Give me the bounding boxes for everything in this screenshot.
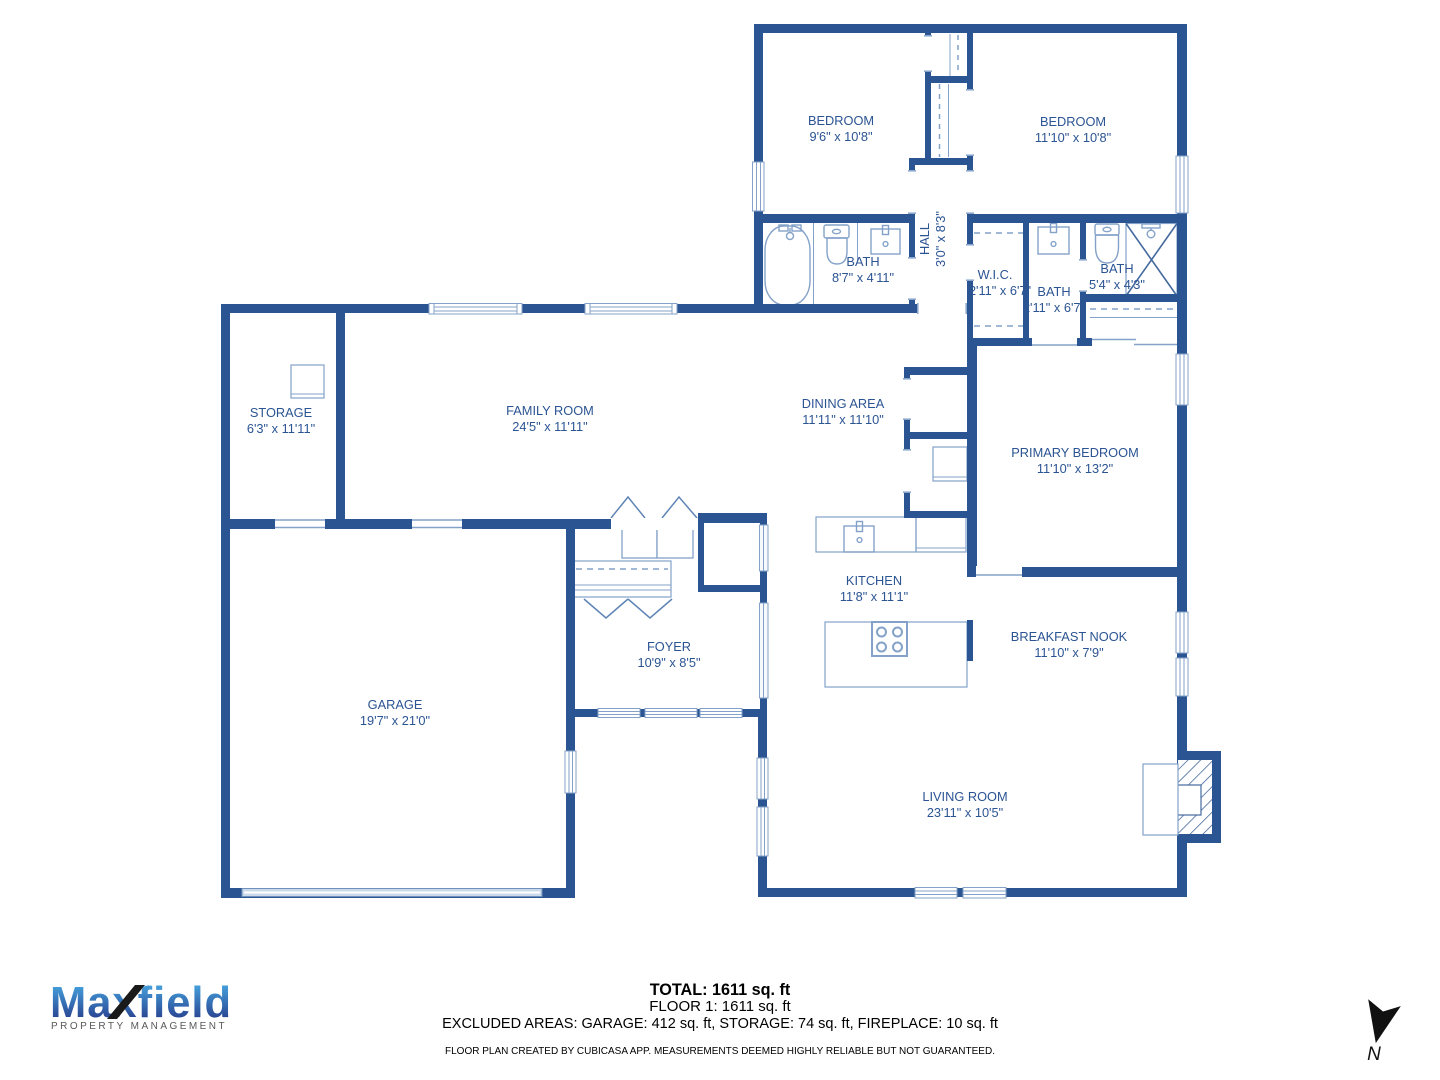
svg-text:2'11" x 6'7": 2'11" x 6'7" bbox=[969, 283, 1031, 298]
svg-text:BEDROOM: BEDROOM bbox=[808, 113, 874, 128]
svg-text:24'5" x 11'11": 24'5" x 11'11" bbox=[512, 419, 587, 434]
svg-text:5'4" x 4'3": 5'4" x 4'3" bbox=[1089, 277, 1145, 292]
svg-text:BATH: BATH bbox=[1037, 284, 1070, 299]
svg-text:BATH: BATH bbox=[1100, 261, 1133, 276]
svg-text:9'6" x 10'8": 9'6" x 10'8" bbox=[809, 129, 872, 144]
svg-text:W.I.C.: W.I.C. bbox=[978, 267, 1013, 282]
svg-text:EXCLUDED AREAS: GARAGE: 412 sq: EXCLUDED AREAS: GARAGE: 412 sq. ft, STOR… bbox=[442, 1016, 998, 1032]
svg-text:FLOOR 1: 1611 sq. ft: FLOOR 1: 1611 sq. ft bbox=[649, 998, 791, 1015]
svg-text:STORAGE: STORAGE bbox=[250, 405, 312, 420]
svg-text:BREAKFAST NOOK: BREAKFAST NOOK bbox=[1011, 629, 1128, 644]
svg-text:BATH: BATH bbox=[846, 254, 879, 269]
svg-text:N: N bbox=[1367, 1044, 1381, 1065]
svg-text:PRIMARY BEDROOM: PRIMARY BEDROOM bbox=[1011, 445, 1139, 460]
svg-text:GARAGE: GARAGE bbox=[368, 697, 423, 712]
svg-text:TOTAL: 1611 sq. ft: TOTAL: 1611 sq. ft bbox=[650, 981, 791, 999]
svg-text:LIVING ROOM: LIVING ROOM bbox=[922, 789, 1007, 804]
svg-text:FOYER: FOYER bbox=[647, 639, 691, 654]
svg-text:11'10" x 7'9": 11'10" x 7'9" bbox=[1034, 645, 1103, 660]
svg-text:11'11" x 11'10": 11'11" x 11'10" bbox=[802, 412, 884, 427]
svg-text:8'7" x 4'11": 8'7" x 4'11" bbox=[832, 270, 894, 285]
svg-text:HALL: HALL bbox=[917, 223, 932, 255]
svg-text:FAMILY ROOM: FAMILY ROOM bbox=[506, 403, 594, 418]
svg-text:23'11" x 10'5": 23'11" x 10'5" bbox=[927, 805, 1003, 820]
svg-text:PROPERTY MANAGEMENT: PROPERTY MANAGEMENT bbox=[51, 1021, 229, 1032]
svg-text:BEDROOM: BEDROOM bbox=[1040, 114, 1106, 129]
svg-text:11'8" x 11'1": 11'8" x 11'1" bbox=[840, 589, 908, 604]
svg-text:11'10" x 10'8": 11'10" x 10'8" bbox=[1035, 130, 1111, 145]
svg-text:11'10" x 13'2": 11'10" x 13'2" bbox=[1037, 461, 1113, 476]
svg-text:3'0" x 8'3": 3'0" x 8'3" bbox=[933, 211, 948, 267]
svg-text:19'7" x 21'0": 19'7" x 21'0" bbox=[360, 713, 430, 728]
svg-text:KITCHEN: KITCHEN bbox=[846, 573, 902, 588]
svg-text:6'3" x 11'11": 6'3" x 11'11" bbox=[247, 421, 315, 436]
svg-text:10'9" x 8'5": 10'9" x 8'5" bbox=[637, 655, 700, 670]
svg-text:2'11" x 6'7": 2'11" x 6'7" bbox=[1023, 300, 1085, 315]
svg-text:FLOOR PLAN CREATED BY CUBICASA: FLOOR PLAN CREATED BY CUBICASA APP. MEAS… bbox=[445, 1046, 995, 1057]
svg-text:DINING AREA: DINING AREA bbox=[802, 396, 885, 411]
